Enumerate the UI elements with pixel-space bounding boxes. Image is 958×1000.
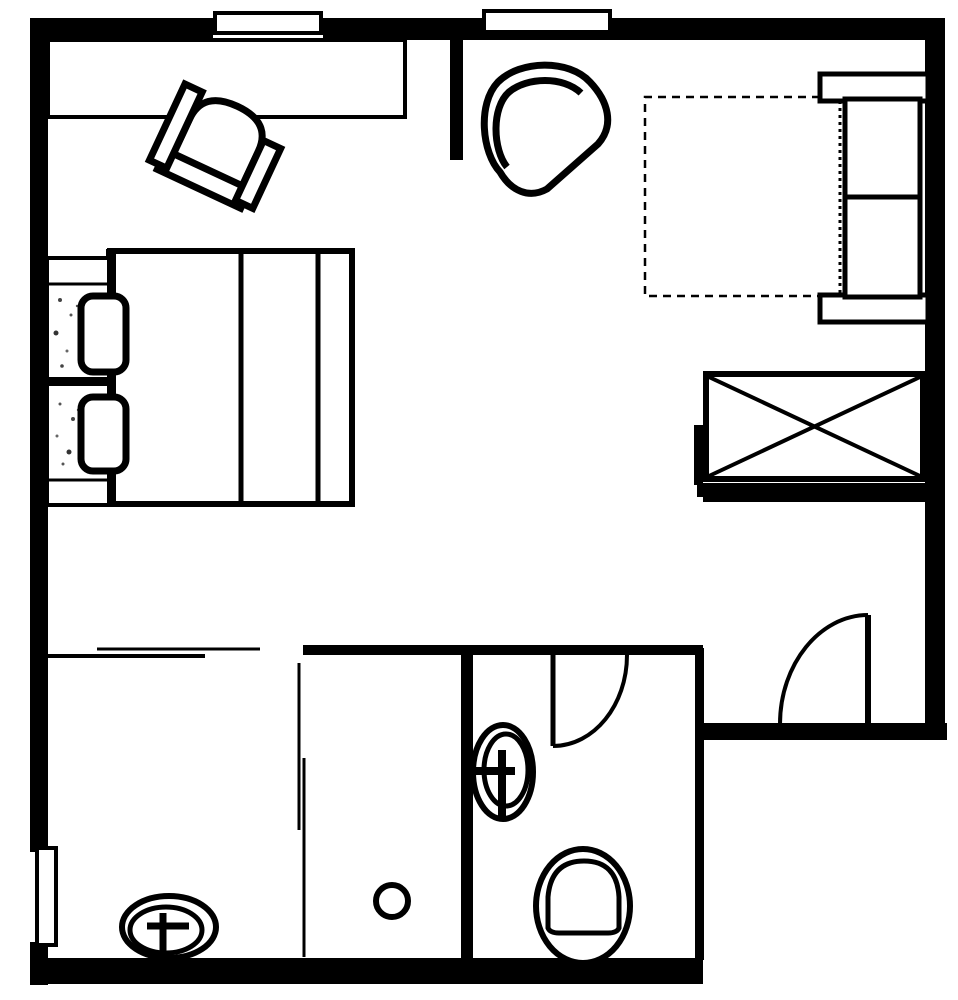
floor-plan-page: [0, 0, 958, 1000]
pillow-top: [81, 296, 126, 372]
closet-wall-ledge: [703, 497, 927, 502]
entry-door-arc: [780, 615, 868, 724]
stipple-dot: [70, 314, 73, 317]
stipple-dot: [59, 403, 62, 406]
window-left-frame: [37, 848, 56, 945]
floor-plan: [0, 0, 958, 1000]
entry-wall: [695, 723, 947, 740]
closet-wall-stub: [694, 425, 703, 485]
bathroom-right-wall: [695, 648, 704, 960]
shower-drain: [376, 885, 408, 917]
interior-wall-stub: [450, 38, 463, 160]
closet-wall-bottom: [697, 483, 927, 497]
rug-dashed-outline: [645, 97, 820, 296]
wall-right: [925, 18, 945, 740]
bathroom-top-wall: [303, 645, 703, 655]
pillow-bottom: [81, 397, 126, 471]
stipple-dot: [71, 417, 75, 421]
stipple-dot: [67, 450, 72, 455]
stipple-dot: [56, 435, 59, 438]
armchair-body: [484, 65, 607, 193]
stipple-dot: [58, 298, 62, 302]
window-top-left-frame: [215, 13, 321, 33]
stipple-dot: [60, 364, 64, 368]
stipple-dot: [54, 331, 59, 336]
stipple-dot: [66, 350, 69, 353]
bathroom-door-arc: [553, 655, 627, 746]
wall-bottom: [30, 958, 703, 984]
stipple-dot: [62, 463, 65, 466]
window-top-middle-frame: [484, 11, 610, 32]
divider-wall: [461, 645, 473, 960]
